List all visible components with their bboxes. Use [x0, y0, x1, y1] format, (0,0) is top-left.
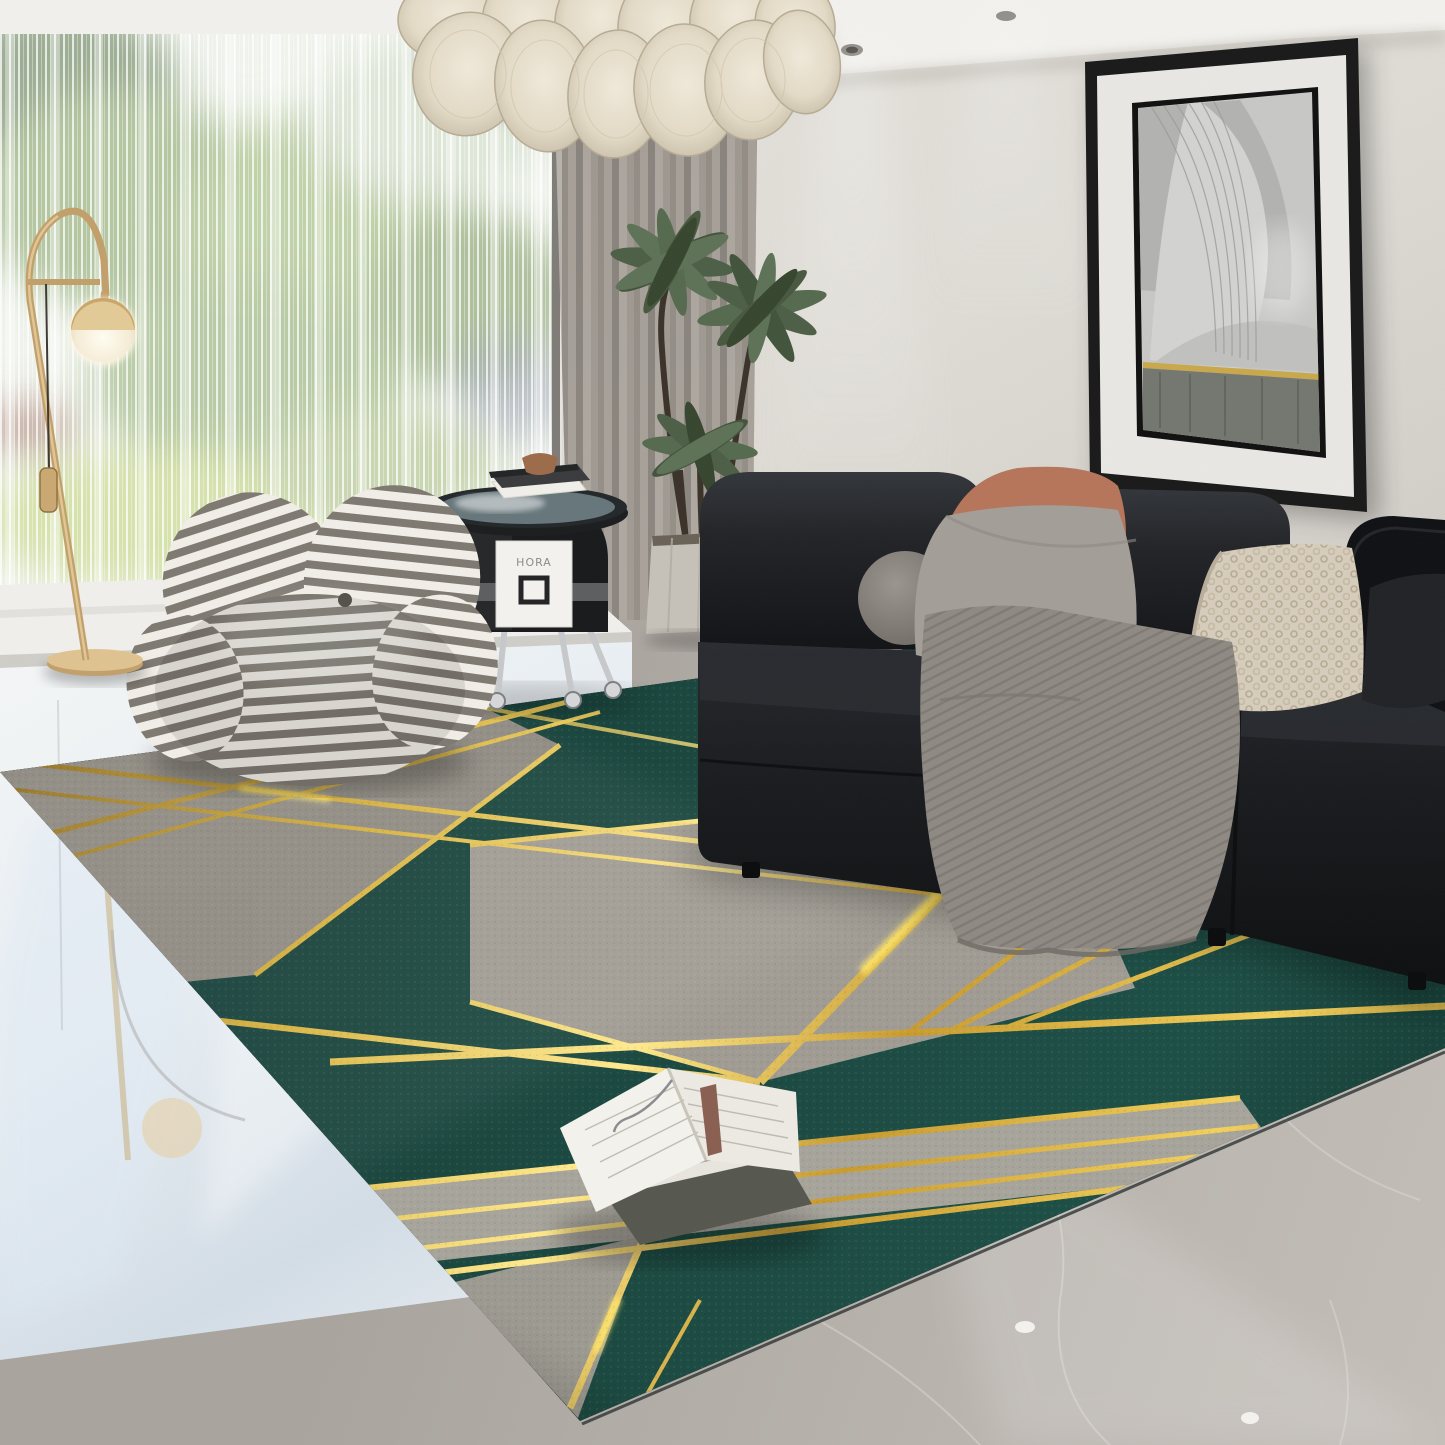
scene-canvas: HORA [0, 0, 1445, 1445]
living-room-photo: HORA [0, 0, 1445, 1445]
photo-grain [0, 0, 1445, 1445]
